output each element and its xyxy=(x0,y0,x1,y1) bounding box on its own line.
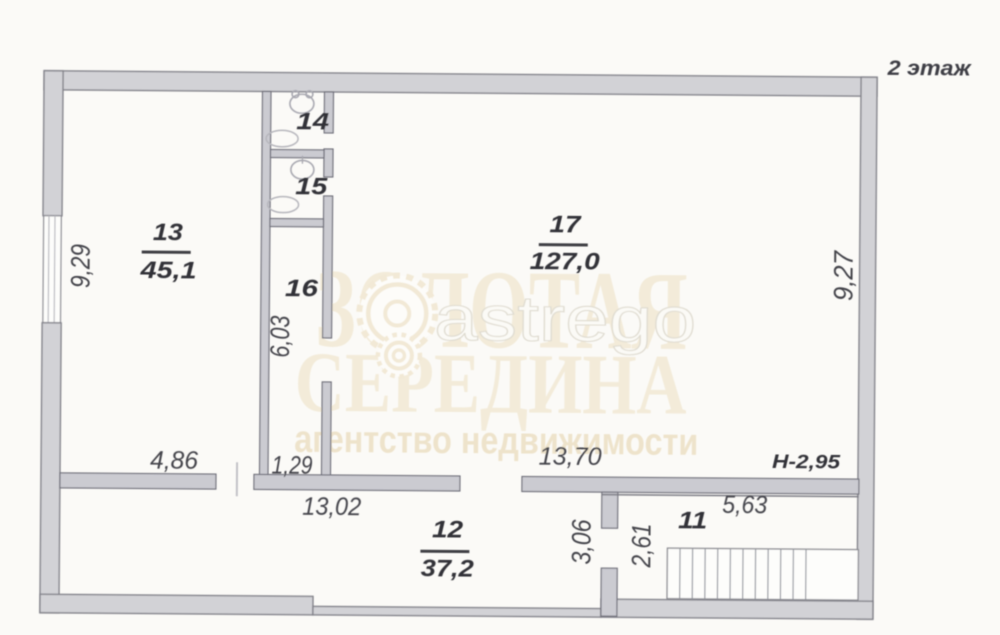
svg-text:9,29: 9,29 xyxy=(65,244,95,288)
svg-text:astrego: astrego xyxy=(434,282,697,356)
svg-text:Н-2,95: Н-2,95 xyxy=(772,452,841,474)
svg-text:17: 17 xyxy=(549,211,582,238)
svg-text:45,1: 45,1 xyxy=(139,257,196,284)
svg-text:13,70: 13,70 xyxy=(539,443,602,471)
svg-text:4,86: 4,86 xyxy=(150,447,198,475)
svg-text:13,02: 13,02 xyxy=(302,493,361,521)
svg-text:12: 12 xyxy=(432,516,464,543)
svg-text:2,61: 2,61 xyxy=(626,523,656,568)
svg-text:16: 16 xyxy=(285,275,319,302)
svg-text:37,2: 37,2 xyxy=(421,555,475,582)
svg-text:6,03: 6,03 xyxy=(265,315,295,357)
svg-text:127,0: 127,0 xyxy=(530,248,601,276)
svg-text:1,29: 1,29 xyxy=(271,452,312,480)
svg-text:2 этаж: 2 этаж xyxy=(886,57,972,81)
svg-text:11: 11 xyxy=(678,507,707,534)
svg-text:14: 14 xyxy=(296,108,329,135)
svg-text:15: 15 xyxy=(295,173,328,200)
svg-text:5,63: 5,63 xyxy=(722,491,767,519)
svg-text:9,27: 9,27 xyxy=(828,250,858,301)
svg-text:13: 13 xyxy=(153,219,184,246)
svg-text:3,06: 3,06 xyxy=(566,519,596,565)
svg-text:агентство недвижимости: агентство недвижимости xyxy=(294,419,698,464)
